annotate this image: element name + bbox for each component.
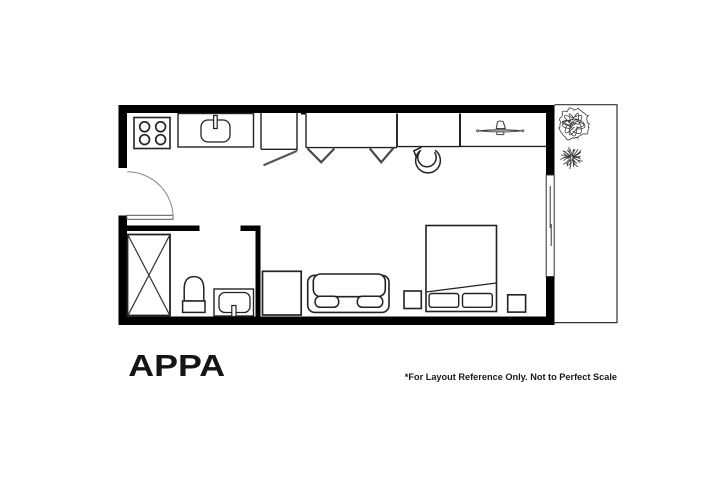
svg-text:*For Layout Reference Only. No: *For Layout Reference Only. Not to Perfe… xyxy=(405,372,617,382)
svg-text:APPA: APPA xyxy=(128,349,225,383)
